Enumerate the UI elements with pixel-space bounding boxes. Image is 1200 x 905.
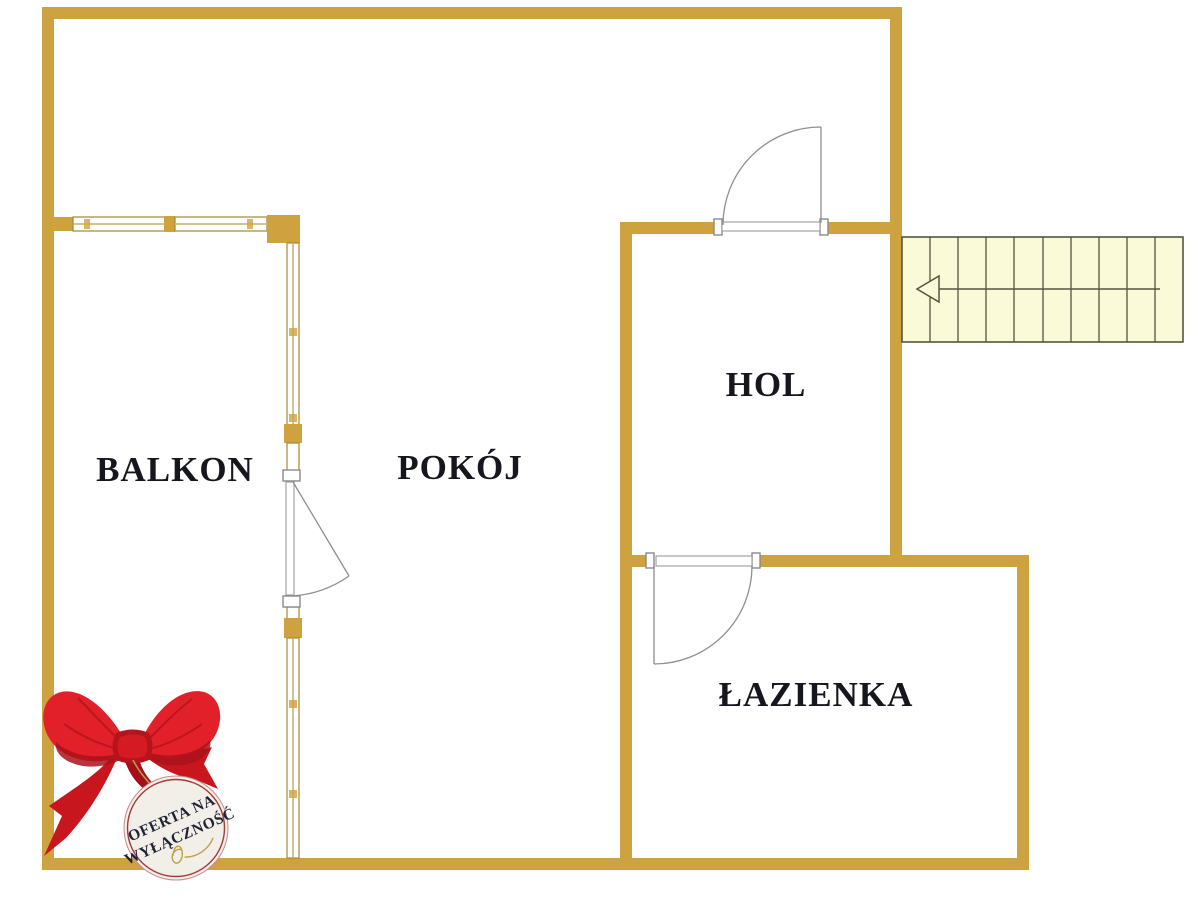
wall-bath-top-b	[760, 555, 1029, 567]
balcony-top-window	[50, 215, 300, 243]
wall-block	[284, 618, 302, 638]
window-pane	[287, 607, 299, 619]
wall-bath-top-a	[632, 555, 646, 567]
door-leaf-closed	[286, 482, 294, 595]
window-divider	[164, 216, 175, 232]
wall-block	[284, 424, 302, 443]
room-label-pokoj: POKÓJ	[397, 447, 523, 487]
window-tick	[289, 790, 297, 798]
door-leaf-closed	[656, 556, 752, 566]
room-label-balkon: BALKON	[96, 450, 254, 489]
door-swing-arc	[654, 566, 752, 664]
wall-bath-right	[1017, 555, 1029, 870]
room-label-lazienka: ŁAZIENKA	[719, 675, 914, 714]
door-jamb	[283, 470, 300, 481]
door-jamb	[646, 553, 654, 568]
entry-door	[714, 127, 828, 235]
door-swing-arc	[723, 127, 821, 225]
wall-right-outer	[890, 7, 902, 567]
window-tick	[247, 219, 253, 229]
door-jamb	[752, 553, 760, 568]
window-tick	[289, 328, 297, 336]
door-leaf-open	[293, 482, 349, 576]
window-tick	[84, 219, 90, 229]
bathroom-door	[646, 553, 760, 664]
wall-corner-block	[267, 215, 300, 243]
window-tick	[289, 700, 297, 708]
door-jamb	[283, 596, 300, 607]
bow-left-tail	[44, 756, 118, 856]
room-label-hol: HOL	[726, 365, 807, 404]
staircase	[902, 237, 1183, 342]
wall-hol-left	[620, 222, 632, 870]
floor-plan: BALKON POKÓJ HOL ŁAZIENKA OFERTA NA WYŁĄ…	[0, 0, 1200, 905]
window-tick	[289, 414, 297, 422]
wall-stub	[50, 217, 74, 231]
wall-hol-top-b	[828, 222, 890, 234]
door-jamb	[714, 219, 722, 235]
wall-top	[42, 7, 902, 19]
bow-knot-highlight	[118, 735, 148, 759]
door-leaf-closed	[722, 222, 820, 231]
balcony-door	[283, 470, 349, 607]
door-swing-arc	[292, 576, 349, 596]
wall-hol-top-a	[632, 222, 714, 234]
window-pane	[287, 443, 299, 471]
